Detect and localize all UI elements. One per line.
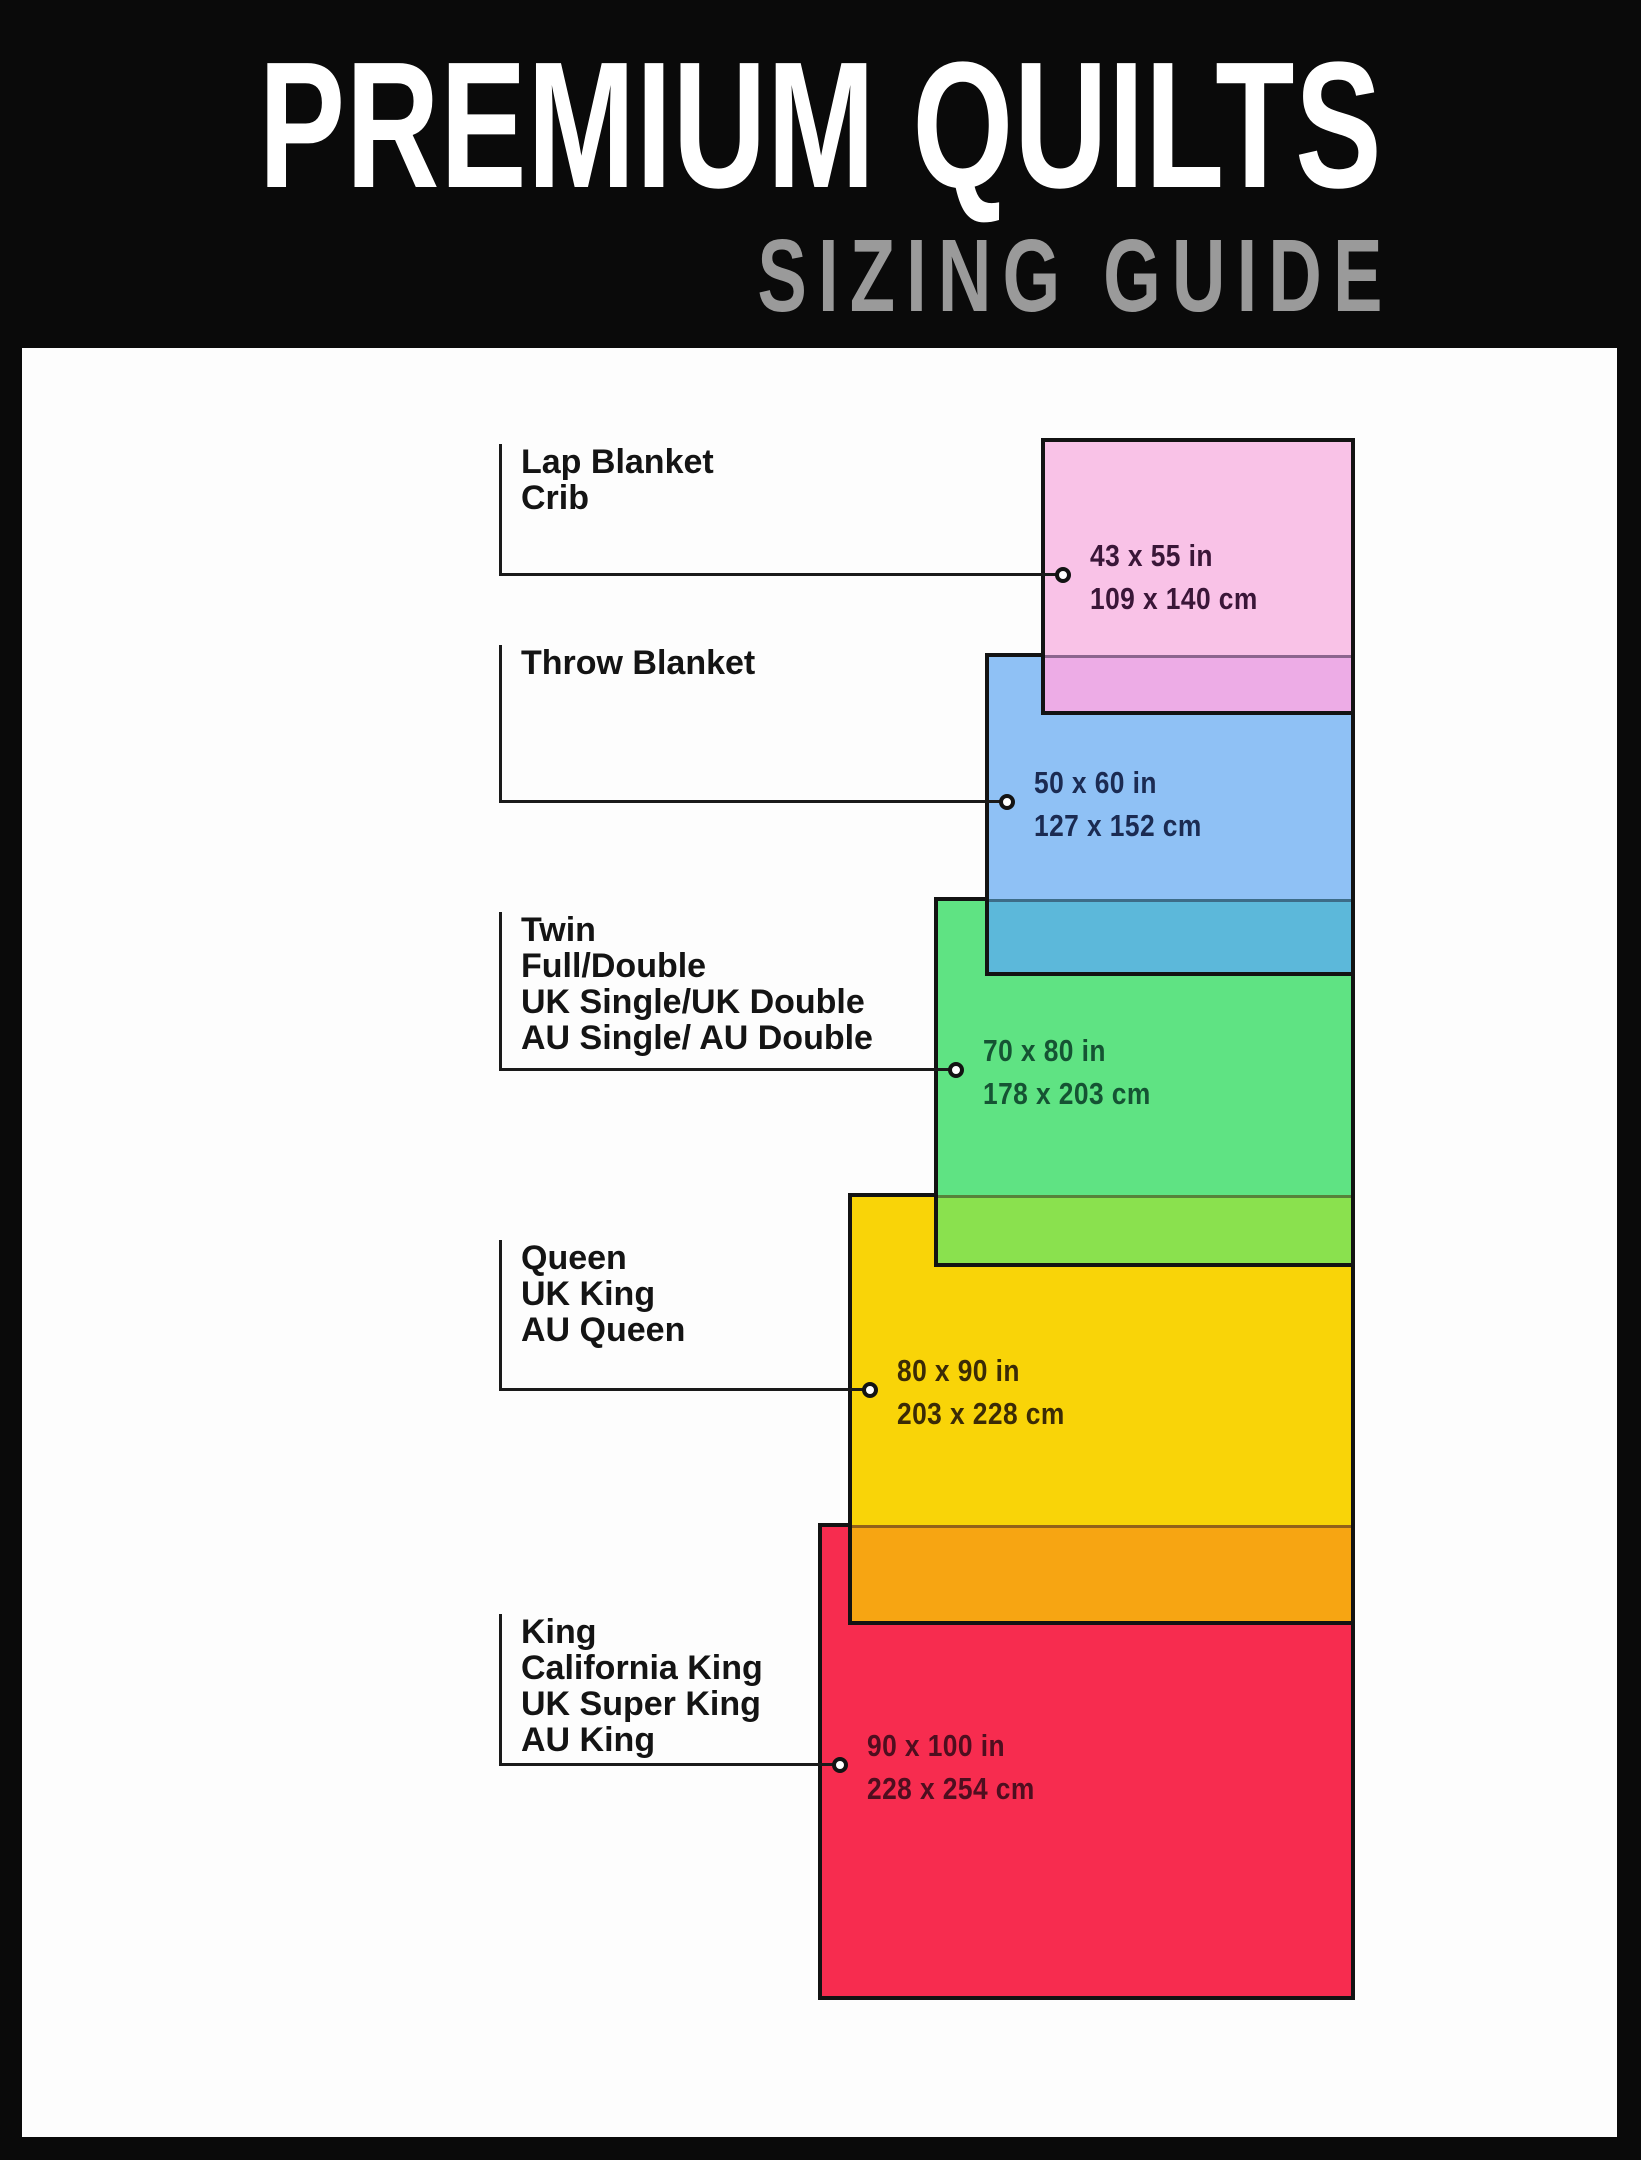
dimensions-inches: 80 x 90 in: [897, 1349, 1065, 1392]
sizing-guide-infographic: PREMIUM QUILTS SIZING GUIDE Lap BlanketC…: [0, 0, 1641, 2160]
connector-dot-twin-full-double: [948, 1062, 964, 1078]
size-label-line: UK Super King: [521, 1686, 763, 1722]
size-label-line: UK Single/UK Double: [521, 984, 873, 1020]
size-label-line: AU Queen: [521, 1312, 685, 1348]
dimensions-inches: 90 x 100 in: [867, 1724, 1035, 1767]
dimensions-king-california-king: 90 x 100 in228 x 254 cm: [867, 1724, 1035, 1810]
dimensions-cm: 228 x 254 cm: [867, 1767, 1035, 1810]
connector-hline-lap-blanket-crib: [499, 573, 1063, 576]
dimensions-inches: 50 x 60 in: [1034, 761, 1202, 804]
size-label-line: AU King: [521, 1722, 763, 1758]
size-label-line: King: [521, 1614, 763, 1650]
connector-dot-throw-blanket: [999, 794, 1015, 810]
page-subtitle: SIZING GUIDE: [758, 224, 1394, 327]
dimensions-queen-uk-king-au-queen: 80 x 90 in203 x 228 cm: [897, 1349, 1065, 1435]
connector-vline-lap-blanket-crib: [499, 444, 502, 576]
dimensions-lap-blanket-crib: 43 x 55 in109 x 140 cm: [1090, 534, 1258, 620]
size-label-line: UK King: [521, 1276, 685, 1312]
size-label-line: Throw Blanket: [521, 645, 755, 681]
size-label-line: California King: [521, 1650, 763, 1686]
dimensions-cm: 203 x 228 cm: [897, 1392, 1065, 1435]
page-title: PREMIUM QUILTS: [230, 36, 1412, 216]
connector-hline-twin-full-double: [499, 1068, 956, 1071]
overlap-band-queen-uk-king-au-queen: [852, 1525, 1351, 1621]
connector-dot-queen-uk-king-au-queen: [862, 1382, 878, 1398]
dimensions-throw-blanket: 50 x 60 in127 x 152 cm: [1034, 761, 1202, 847]
size-label-line: AU Single/ AU Double: [521, 1020, 873, 1056]
connector-dot-lap-blanket-crib: [1055, 567, 1071, 583]
overlap-band-throw-blanket: [989, 899, 1351, 972]
overlap-band-twin-full-double: [938, 1195, 1351, 1263]
connector-hline-queen-uk-king-au-queen: [499, 1388, 870, 1391]
dimensions-cm: 109 x 140 cm: [1090, 577, 1258, 620]
connector-vline-twin-full-double: [499, 912, 502, 1071]
connector-hline-king-california-king: [499, 1763, 840, 1766]
size-label-line: Crib: [521, 480, 714, 516]
size-label-queen-uk-king-au-queen: QueenUK KingAU Queen: [521, 1240, 685, 1348]
dimensions-twin-full-double: 70 x 80 in178 x 203 cm: [983, 1029, 1151, 1115]
size-label-line: Lap Blanket: [521, 444, 714, 480]
connector-dot-king-california-king: [832, 1757, 848, 1773]
overlap-band-lap-blanket-crib: [1045, 655, 1351, 711]
size-label-twin-full-double: TwinFull/DoubleUK Single/UK DoubleAU Sin…: [521, 912, 873, 1056]
dimensions-inches: 43 x 55 in: [1090, 534, 1258, 577]
connector-vline-king-california-king: [499, 1614, 502, 1766]
dimensions-inches: 70 x 80 in: [983, 1029, 1151, 1072]
size-label-lap-blanket-crib: Lap BlanketCrib: [521, 444, 714, 516]
connector-hline-throw-blanket: [499, 800, 1007, 803]
dimensions-cm: 127 x 152 cm: [1034, 804, 1202, 847]
size-label-line: Queen: [521, 1240, 685, 1276]
dimensions-cm: 178 x 203 cm: [983, 1072, 1151, 1115]
connector-vline-queen-uk-king-au-queen: [499, 1240, 502, 1391]
size-label-line: Twin: [521, 912, 873, 948]
size-label-king-california-king: KingCalifornia KingUK Super KingAU King: [521, 1614, 763, 1758]
size-label-throw-blanket: Throw Blanket: [521, 645, 755, 681]
connector-vline-throw-blanket: [499, 645, 502, 803]
size-label-line: Full/Double: [521, 948, 873, 984]
